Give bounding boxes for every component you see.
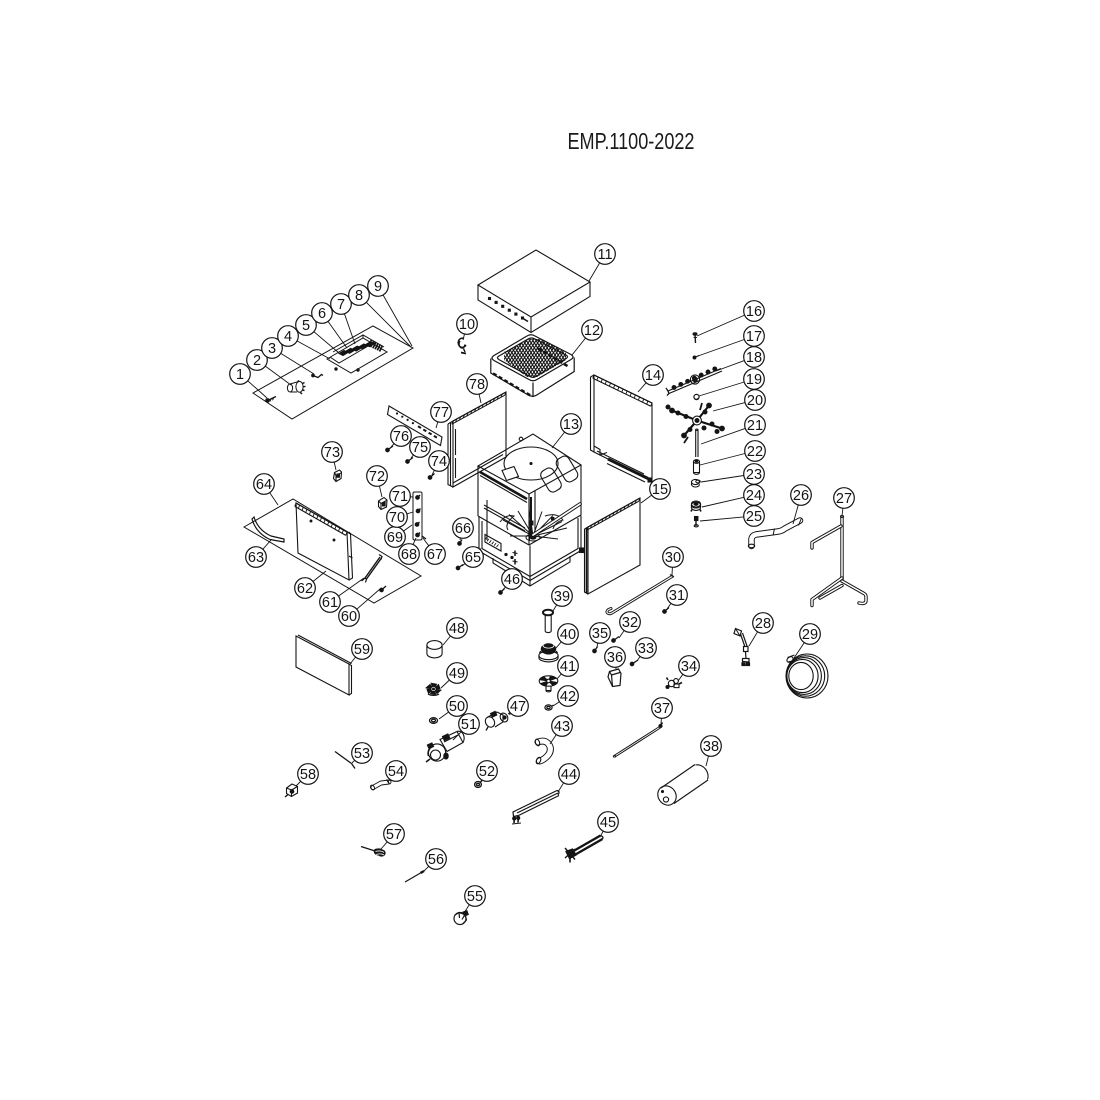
svg-text:20: 20: [747, 393, 763, 409]
svg-text:67: 67: [427, 547, 443, 563]
svg-text:36: 36: [607, 650, 623, 666]
svg-text:38: 38: [703, 739, 719, 755]
svg-text:60: 60: [341, 609, 357, 625]
svg-text:15: 15: [652, 482, 668, 498]
svg-text:3: 3: [268, 341, 276, 357]
svg-text:21: 21: [747, 418, 763, 434]
svg-text:30: 30: [665, 550, 681, 566]
svg-text:59: 59: [354, 642, 370, 658]
svg-text:57: 57: [386, 827, 402, 843]
svg-text:54: 54: [388, 764, 404, 780]
svg-text:33: 33: [638, 641, 654, 657]
svg-text:55: 55: [467, 889, 483, 905]
svg-text:78: 78: [469, 377, 485, 393]
svg-text:56: 56: [428, 852, 444, 868]
svg-text:22: 22: [747, 444, 763, 460]
svg-text:28: 28: [755, 616, 771, 632]
svg-text:4: 4: [284, 329, 292, 345]
svg-text:31: 31: [669, 588, 685, 604]
svg-text:71: 71: [392, 489, 408, 505]
svg-text:2: 2: [253, 353, 261, 369]
svg-text:50: 50: [449, 699, 465, 715]
svg-text:64: 64: [256, 477, 272, 493]
svg-text:49: 49: [449, 666, 465, 682]
svg-text:14: 14: [645, 368, 661, 384]
svg-text:68: 68: [401, 547, 417, 563]
svg-text:41: 41: [560, 659, 576, 675]
svg-text:11: 11: [597, 247, 612, 263]
svg-text:35: 35: [592, 626, 608, 642]
svg-text:43: 43: [554, 719, 570, 735]
svg-text:58: 58: [300, 767, 316, 783]
svg-text:12: 12: [584, 323, 600, 339]
svg-text:25: 25: [746, 509, 762, 525]
svg-text:74: 74: [431, 454, 447, 470]
svg-text:29: 29: [802, 627, 818, 643]
svg-text:75: 75: [412, 440, 428, 456]
svg-text:8: 8: [355, 288, 363, 304]
svg-text:32: 32: [622, 615, 638, 631]
svg-text:1: 1: [236, 367, 244, 383]
svg-text:73: 73: [324, 445, 340, 461]
svg-text:13: 13: [563, 417, 579, 433]
svg-text:9: 9: [374, 279, 382, 295]
svg-text:70: 70: [389, 510, 405, 526]
svg-text:77: 77: [433, 405, 449, 421]
svg-text:10: 10: [459, 317, 475, 333]
svg-text:39: 39: [554, 589, 570, 605]
svg-text:69: 69: [387, 530, 403, 546]
svg-text:61: 61: [322, 595, 338, 611]
svg-text:51: 51: [461, 717, 477, 733]
svg-text:48: 48: [449, 621, 465, 637]
svg-text:52: 52: [479, 764, 495, 780]
svg-text:66: 66: [455, 521, 471, 537]
svg-text:46: 46: [504, 572, 520, 588]
svg-text:42: 42: [560, 689, 576, 705]
svg-text:EMP.1100-2022: EMP.1100-2022: [568, 128, 695, 154]
svg-text:24: 24: [746, 488, 762, 504]
svg-text:27: 27: [836, 491, 852, 507]
svg-text:72: 72: [369, 469, 385, 485]
svg-text:19: 19: [746, 372, 762, 388]
svg-text:26: 26: [793, 488, 809, 504]
svg-text:53: 53: [354, 746, 370, 762]
svg-text:7: 7: [337, 297, 345, 313]
svg-text:16: 16: [746, 304, 762, 320]
svg-text:63: 63: [248, 550, 264, 566]
svg-text:6: 6: [318, 306, 326, 322]
svg-text:76: 76: [393, 429, 409, 445]
svg-text:34: 34: [681, 659, 697, 675]
svg-text:47: 47: [510, 699, 526, 715]
svg-text:37: 37: [654, 701, 670, 717]
svg-text:44: 44: [561, 767, 577, 783]
svg-text:62: 62: [297, 581, 313, 597]
svg-text:23: 23: [746, 467, 762, 483]
svg-text:5: 5: [302, 318, 310, 334]
svg-text:18: 18: [746, 350, 762, 366]
svg-text:45: 45: [600, 815, 616, 831]
svg-text:65: 65: [465, 550, 481, 566]
svg-text:17: 17: [746, 329, 762, 345]
svg-text:40: 40: [560, 627, 576, 643]
